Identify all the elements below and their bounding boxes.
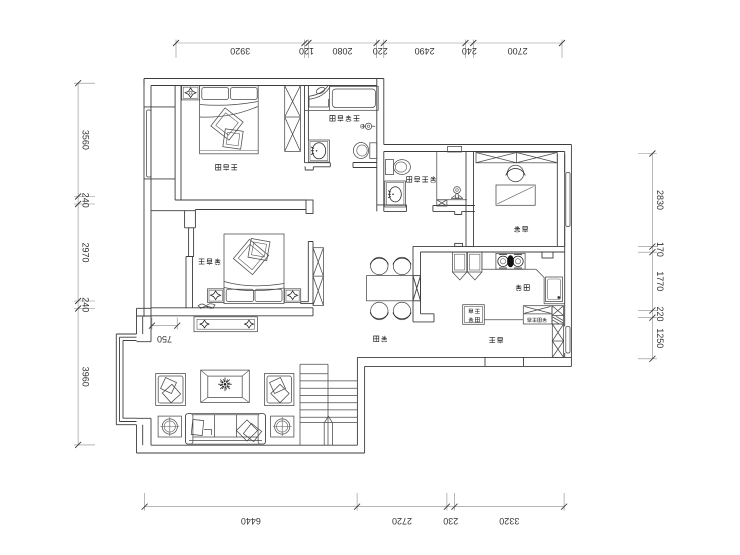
svg-text:3560: 3560: [81, 130, 91, 150]
svg-text:3320: 3320: [499, 516, 519, 526]
svg-text:3960: 3960: [81, 367, 91, 387]
svg-text:2970: 2970: [81, 242, 91, 262]
svg-text:2830: 2830: [655, 190, 665, 210]
svg-text:1770: 1770: [655, 271, 665, 291]
svg-text:220: 220: [373, 46, 388, 56]
svg-text:240: 240: [81, 297, 91, 312]
svg-text:2490: 2490: [415, 46, 435, 56]
svg-text:240: 240: [81, 193, 91, 208]
svg-text:750: 750: [157, 334, 172, 344]
svg-text:230: 230: [443, 516, 458, 526]
svg-text:2720: 2720: [392, 516, 412, 526]
svg-text:6440: 6440: [241, 516, 261, 526]
svg-text:2080: 2080: [332, 46, 352, 56]
svg-text:120: 120: [299, 46, 314, 56]
svg-text:220: 220: [655, 306, 665, 321]
svg-text:3920: 3920: [230, 46, 250, 56]
svg-text:2700: 2700: [508, 46, 528, 56]
svg-text:240: 240: [462, 46, 477, 56]
svg-text:170: 170: [655, 242, 665, 257]
svg-text:1250: 1250: [655, 328, 665, 348]
